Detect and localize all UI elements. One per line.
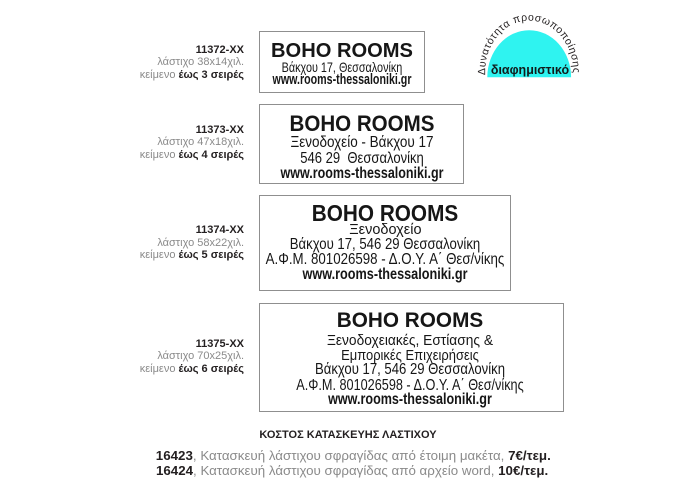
svg-text:διαφημιστικό: διαφημιστικό (491, 63, 570, 77)
